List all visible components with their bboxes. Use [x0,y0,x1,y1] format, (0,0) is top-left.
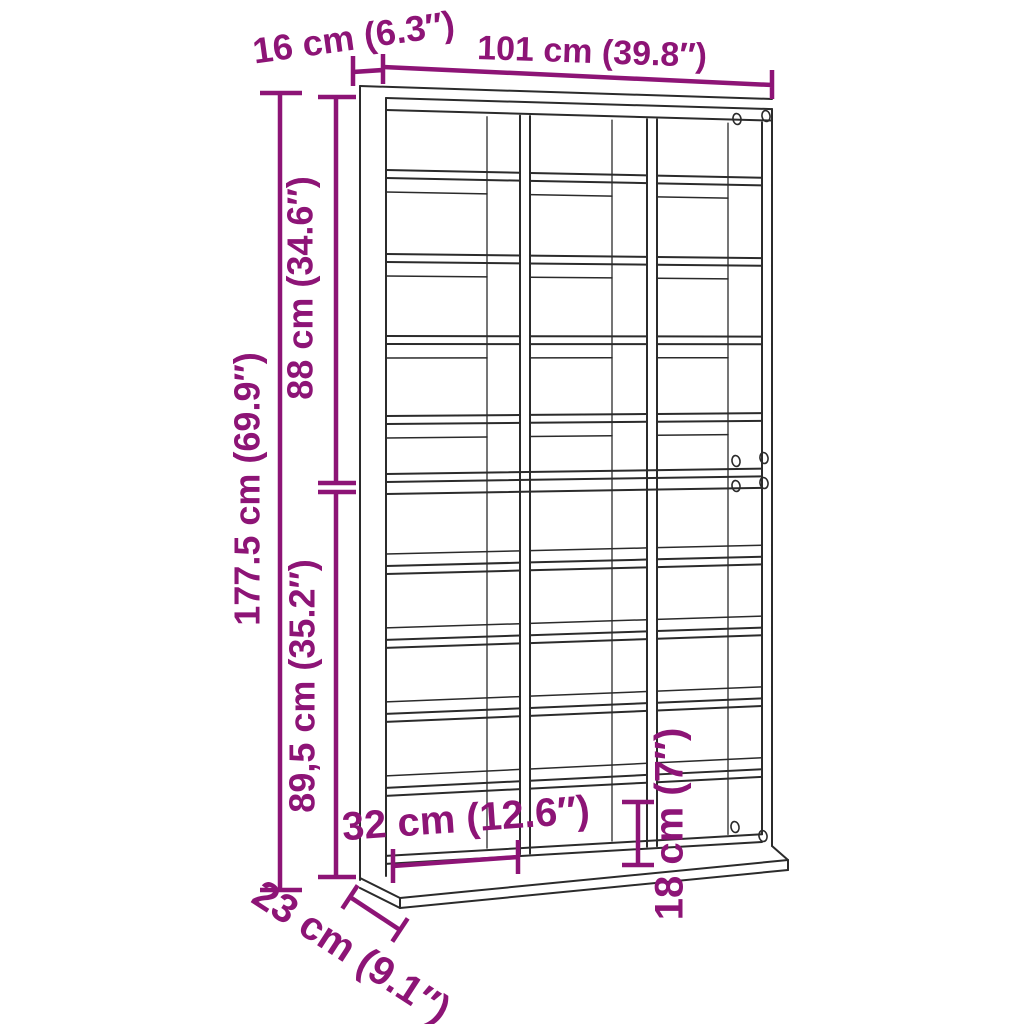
diagram-page: 16 cm (6.3″) 101 cm (39.8″) 177.5 cm (69… [0,0,1024,1024]
width-label: 101 cm (39.8″) [477,29,708,75]
shelf-line-art [360,86,788,908]
dim-depth-top-line [353,54,383,86]
dim-width-line [383,67,772,99]
bottom-compartment-height-label: 18 cm (7″) [648,728,692,921]
compartment-width-label: 32 cm (12.6″) [341,788,592,849]
lower-section-height-label: 89,5 cm (35.2″) [282,559,323,812]
dim-upper-height-line [318,97,356,483]
dimension-labels: 16 cm (6.3″) 101 cm (39.8″) 177.5 cm (69… [227,3,708,1024]
upper-section-height-label: 88 cm (34.6″) [280,176,321,399]
shelf-dimension-diagram: 16 cm (6.3″) 101 cm (39.8″) 177.5 cm (69… [0,0,1024,1024]
total-height-label: 177.5 cm (69.9″) [227,352,268,625]
